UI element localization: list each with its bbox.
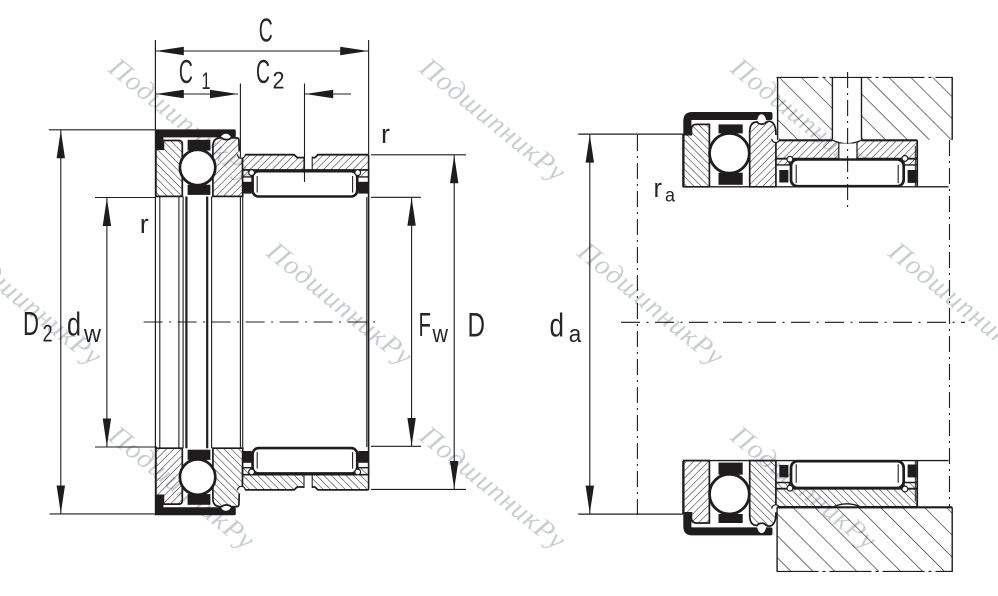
- svg-text:w: w: [83, 321, 102, 348]
- svg-text:a: a: [569, 321, 582, 348]
- svg-text:d: d: [67, 305, 81, 342]
- svg-text:r: r: [140, 209, 149, 239]
- svg-text:D: D: [23, 305, 39, 342]
- svg-text:d: d: [550, 307, 565, 344]
- svg-text:D: D: [468, 306, 486, 344]
- svg-text:C: C: [256, 53, 270, 90]
- svg-text:w: w: [432, 321, 449, 348]
- svg-text:ПодшипникРу: ПодшипникРу: [0, 236, 108, 373]
- svg-text:F: F: [419, 306, 432, 343]
- svg-text:1: 1: [202, 68, 211, 95]
- svg-text:a: a: [665, 186, 675, 207]
- svg-text:C: C: [259, 12, 273, 49]
- svg-text:r: r: [654, 173, 663, 203]
- svg-text:ПодшипникРу: ПодшипникРу: [413, 420, 572, 557]
- svg-text:ПодшипникРу: ПодшипникРу: [571, 236, 730, 373]
- svg-text:2: 2: [43, 321, 53, 348]
- svg-text:ПодшипникРу: ПодшипникРу: [260, 236, 419, 373]
- svg-text:C: C: [179, 53, 193, 90]
- svg-text:r: r: [381, 119, 390, 149]
- svg-text:ПодшипникРу: ПодшипникРу: [882, 236, 998, 373]
- svg-text:2: 2: [273, 68, 285, 95]
- svg-text:ПодшипникРу: ПодшипникРу: [413, 52, 572, 189]
